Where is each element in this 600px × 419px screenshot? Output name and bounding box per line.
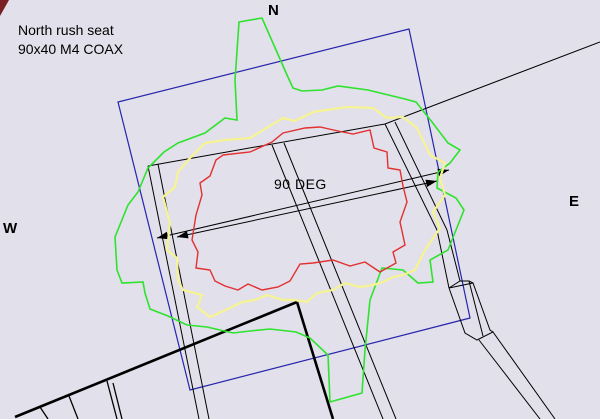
compass-west-label: W — [3, 220, 17, 237]
stand-line-10 — [493, 332, 555, 419]
thick-wall-0 — [15, 302, 297, 417]
dimension-arrowhead-right-1 — [425, 180, 437, 187]
hatch-tick-0 — [40, 407, 48, 419]
stand-line-9 — [469, 281, 483, 336]
stand-line-6 — [395, 122, 460, 281]
corner-mark — [0, 0, 9, 16]
title-line-1: North rush seat — [18, 22, 114, 38]
stand-line-11 — [479, 340, 540, 419]
stand-line-8 — [449, 283, 493, 340]
title-annotation: North rush seat90x40 M4 COAX — [18, 21, 123, 59]
hatch-tick-3 — [113, 383, 122, 419]
dimension-arrowhead-left-0 — [157, 232, 169, 239]
title-line-2: 90x40 M4 COAX — [18, 41, 123, 57]
blue-boundary-rect — [118, 29, 470, 390]
radiation-pattern-drawing — [0, 0, 600, 419]
contour-inner-red — [192, 127, 407, 290]
cad-viewport: North rush seat90x40 M4 COAX N E W 90 DE… — [0, 0, 600, 419]
hatch-tick-1 — [69, 396, 78, 419]
compass-east-label: E — [569, 193, 579, 210]
dimension-label: 90 DEG — [274, 176, 327, 192]
compass-north-label: N — [268, 2, 279, 19]
hatch-tick-2 — [107, 381, 117, 419]
